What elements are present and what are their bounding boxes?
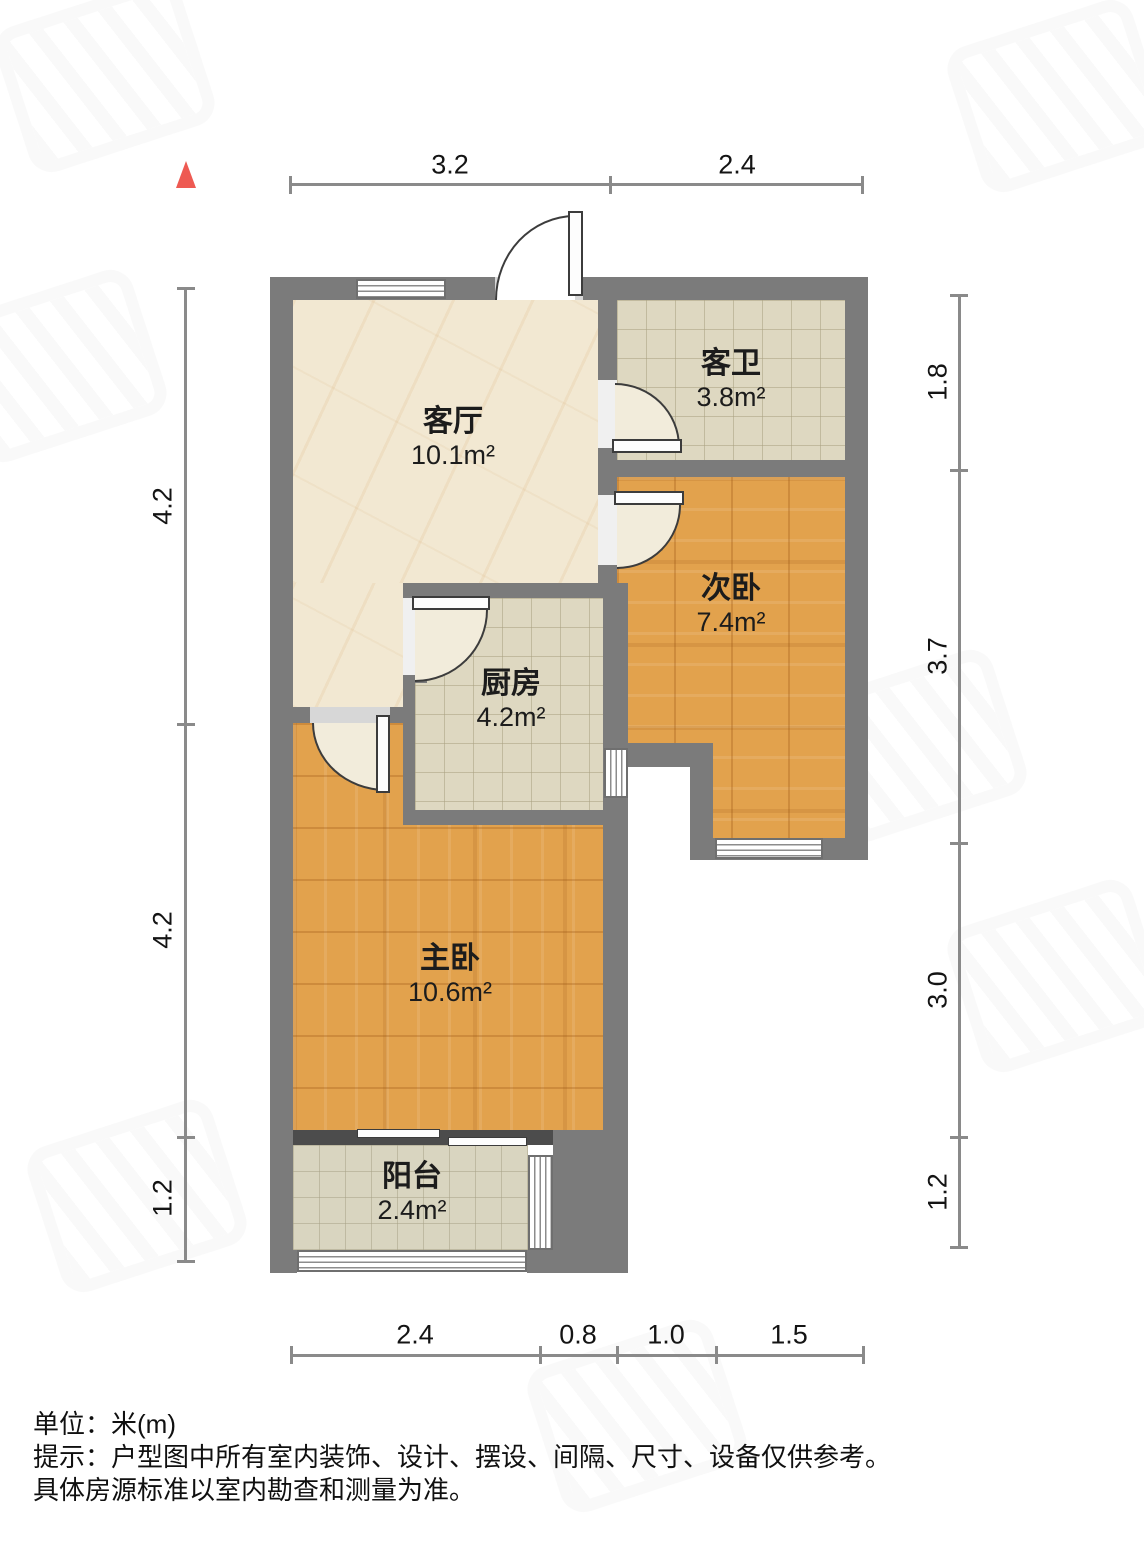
dim-label-left-3: 1.2 [148,1179,179,1217]
dim-tick [609,176,612,194]
living-room-floor [293,583,403,707]
unit-note: 单位：米(m) [33,1408,1123,1441]
sliding-door-panel [448,1137,527,1146]
dim-label-right-2: 3.7 [923,637,954,675]
dim-tick [616,1346,619,1364]
disclaimer-line1: 提示：户型图中所有室内装饰、设计、摆设、间隔、尺寸、设备仅供参考。 [33,1441,1123,1474]
dim-label-left-2: 4.2 [148,911,179,949]
wall-notch-horizontal [617,743,713,767]
wall-notch-vertical [690,767,713,838]
room-name: 主卧 [368,942,532,976]
room-name: 次卧 [649,572,813,606]
watermark [0,0,221,178]
room-area: 2.4m² [330,1194,494,1226]
room-label-living: 客厅 10.1m² [371,405,535,471]
watermark [941,874,1144,1079]
dim-line-top [290,183,864,186]
room-area: 7.4m² [649,606,813,638]
dim-tick [950,1246,968,1249]
wall-balcony-bottom-right [527,1250,553,1273]
bedroom2-door-panel [614,491,684,505]
entrance-door-panel [568,211,583,296]
dim-tick [177,723,195,726]
room-label-balcony: 阳台 2.4m² [330,1160,494,1226]
wall-bathroom-bottom [598,460,847,477]
dim-tick [177,287,195,290]
dim-label-top-2: 2.4 [718,150,756,181]
living-room-window [356,279,446,299]
dim-tick [950,294,968,297]
dim-tick [539,1346,542,1364]
disclaimer-line2: 具体房源标准以室内勘查和测量为准。 [33,1474,1123,1507]
room-name: 客厅 [371,405,535,439]
dim-label-bottom-3: 1.0 [647,1320,685,1351]
bedroom2-window [715,838,823,859]
room-area: 4.2m² [429,701,593,733]
dim-tick [862,1346,865,1364]
balcony-right-window [528,1155,553,1250]
room-area: 3.8m² [649,381,813,413]
room-name: 客卫 [649,347,813,381]
room-area: 10.6m² [368,976,532,1008]
dim-tick [950,1136,968,1139]
sliding-door-panel [357,1129,440,1138]
watermark [21,1094,252,1299]
dim-label-right-4: 1.2 [923,1173,954,1211]
dim-label-bottom-1: 2.4 [396,1320,434,1351]
wall-kitchen-bottom [403,810,628,825]
dim-tick [861,176,864,194]
room-label-kitchen: 厨房 4.2m² [429,667,593,733]
dim-label-top-1: 3.2 [431,150,469,181]
floorplan-page: 客厅 10.1m² 客卫 3.8m² 次卧 7.4m² 厨房 4.2m² 主卧 … [0,0,1144,1550]
room-name: 阳台 [330,1160,494,1194]
kitchen-side-window [604,748,628,798]
dim-tick [177,1260,195,1263]
room-area: 10.1m² [371,439,535,471]
dim-tick [290,1346,293,1364]
watermark [941,0,1144,198]
bathroom-door-panel [612,439,682,453]
wall-left-outer [270,277,293,1273]
balcony-front-window [297,1250,527,1272]
wall-right-outer [845,277,868,860]
room-label-bathroom: 客卫 3.8m² [649,347,813,413]
dim-tick [950,842,968,845]
entrance-door-swing [495,215,575,300]
dim-tick [177,1136,195,1139]
dim-label-left-1: 4.2 [148,487,179,525]
exterior-notch [628,767,690,838]
room-label-bedroom2: 次卧 7.4m² [649,572,813,638]
dim-line-left [184,288,187,1262]
bedroom2-door-opening [598,495,617,565]
room-name: 厨房 [429,667,593,701]
watermark [0,264,173,469]
dim-tick [289,176,292,194]
dim-label-bottom-2: 0.8 [559,1320,597,1351]
dim-line-bottom [291,1354,864,1357]
wall-master-right [603,825,628,1132]
footer-notes: 单位：米(m) 提示：户型图中所有室内装饰、设计、摆设、间隔、尺寸、设备仅供参考… [33,1408,1123,1507]
wall-balcony-bottom-left [270,1250,297,1273]
dim-label-right-3: 3.0 [923,971,954,1009]
dim-label-right-1: 1.8 [923,363,954,401]
dim-tick [715,1346,718,1364]
north-arrow-icon [176,161,196,188]
master-door-panel [376,715,390,793]
dim-label-bottom-4: 1.5 [770,1320,808,1351]
dim-tick [950,469,968,472]
room-label-master: 主卧 10.6m² [368,942,532,1008]
wall-bottom-right-block [553,1130,628,1273]
kitchen-door-panel [412,596,490,610]
dim-line-right [958,295,961,1248]
